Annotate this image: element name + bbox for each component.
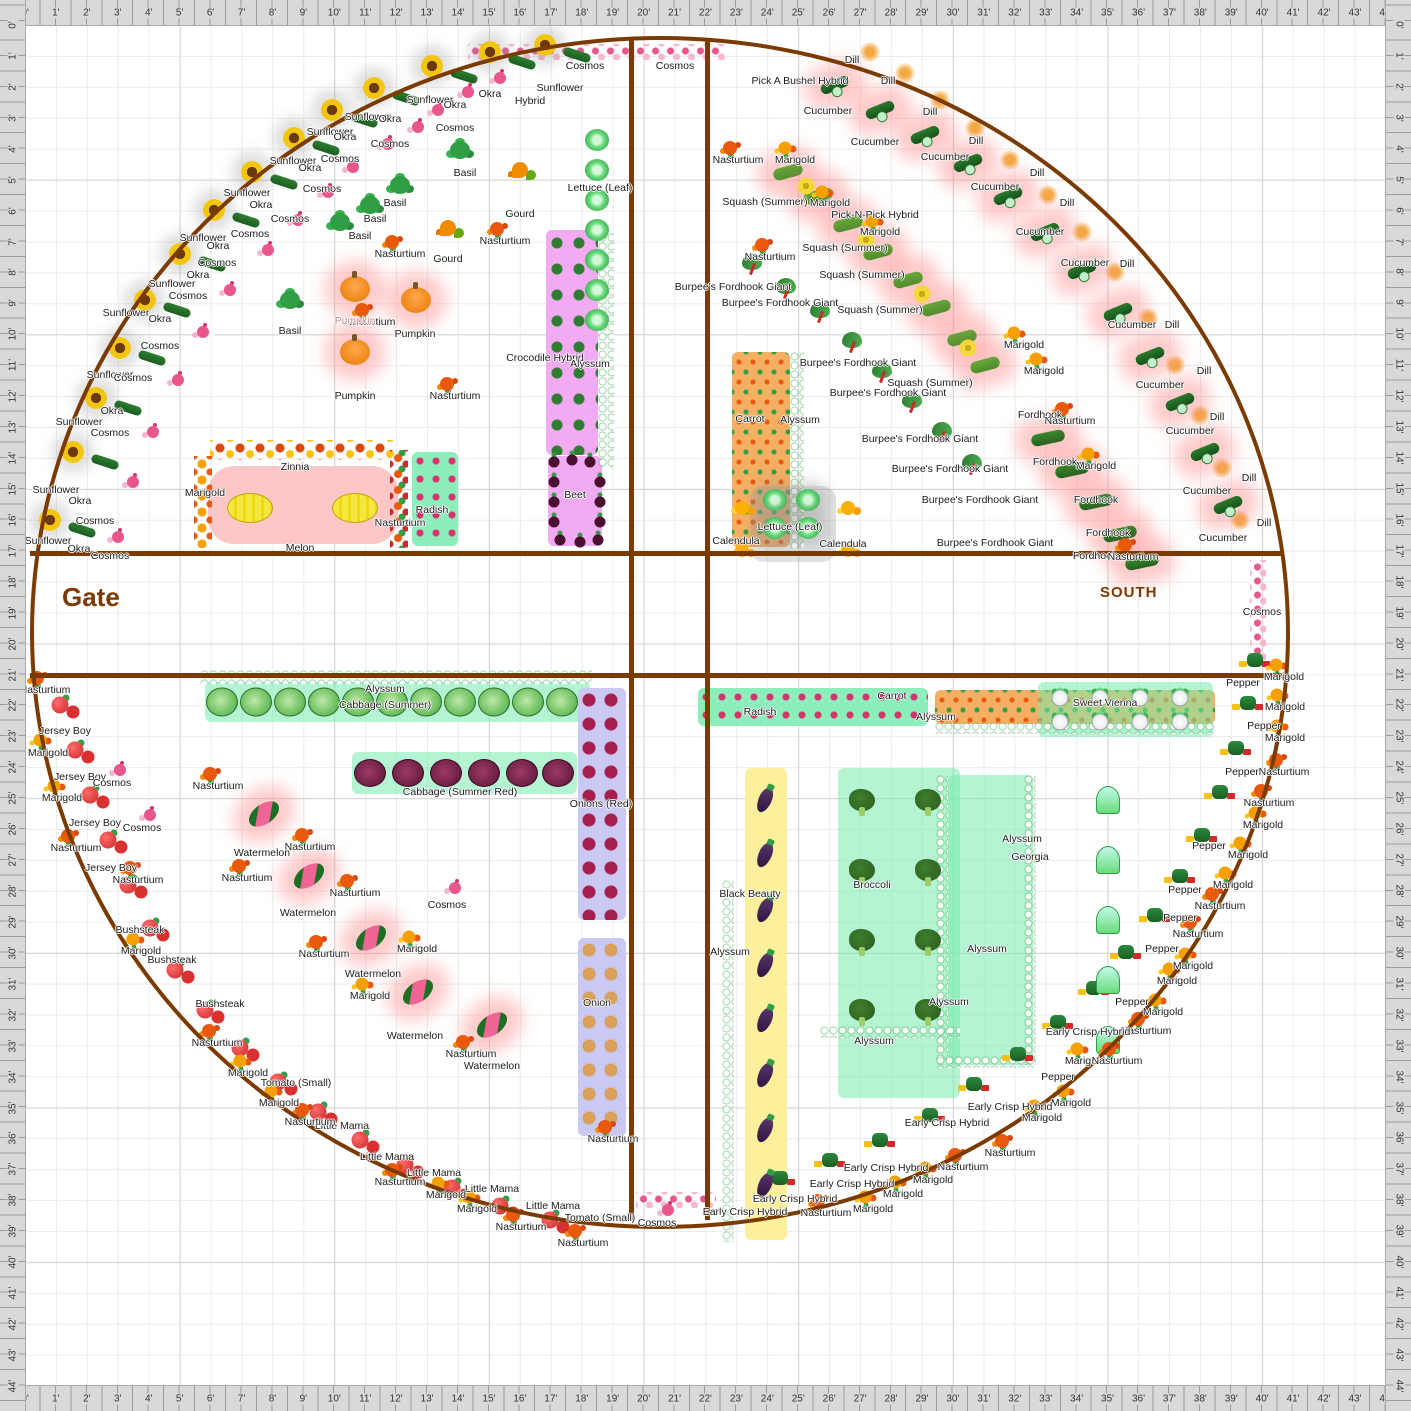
- plant-label[interactable]: Basil: [364, 213, 387, 225]
- plant-icon-cabbager[interactable]: [506, 759, 538, 787]
- plant-label[interactable]: Marigold: [860, 226, 900, 238]
- plant-icon-pepper[interactable]: [1118, 945, 1134, 959]
- plant-label[interactable]: Radish: [744, 706, 777, 718]
- plant-label[interactable]: Nasturtium: [1195, 900, 1246, 912]
- plant-icon-nasturtium[interactable]: [295, 828, 309, 842]
- plant-icon-lettuce[interactable]: [585, 129, 609, 151]
- plant-label[interactable]: Marigold: [1228, 849, 1268, 861]
- plant-label[interactable]: Nasturtium: [745, 251, 796, 263]
- plant-icon-nasturtium[interactable]: [723, 141, 737, 155]
- plant-label[interactable]: Nasturtium: [285, 1116, 336, 1128]
- plant-label[interactable]: Cosmos: [123, 822, 162, 834]
- plant-label[interactable]: Burpee's Fordhook Giant: [675, 281, 791, 293]
- plant-label[interactable]: Cosmos: [436, 122, 475, 134]
- plant-label[interactable]: Pepper: [1225, 766, 1259, 778]
- plant-label[interactable]: Squash (Summer): [837, 304, 922, 316]
- plant-label[interactable]: Watermelon: [234, 847, 290, 859]
- plant-icon-cosmos[interactable]: [224, 284, 236, 296]
- plant-label[interactable]: Nasturtium: [1108, 551, 1159, 563]
- plant-icon-basil[interactable]: [390, 176, 410, 194]
- plant-label[interactable]: Nasturtium: [222, 872, 273, 884]
- plant-label[interactable]: Cucumber: [921, 151, 969, 163]
- plant-label[interactable]: Cucumber: [851, 136, 899, 148]
- plant-label[interactable]: Alyssum: [916, 711, 956, 723]
- plant-label[interactable]: Sweet Vienna: [1073, 697, 1138, 709]
- plant-label[interactable]: Sunflower: [537, 82, 584, 94]
- plant-label[interactable]: Cosmos: [91, 427, 130, 439]
- plant-icon-sunflower[interactable]: [169, 243, 191, 265]
- plant-label[interactable]: Watermelon: [464, 1060, 520, 1072]
- plant-label[interactable]: Cabbage (Summer Red): [403, 786, 517, 798]
- plant-icon-pepper[interactable]: [1247, 653, 1263, 667]
- plant-icon-chard[interactable]: [842, 332, 862, 348]
- plant-label[interactable]: Nasturtium: [299, 948, 350, 960]
- plant-icon-marigold[interactable]: [859, 1191, 872, 1204]
- garden-bed[interactable]: [745, 768, 787, 1240]
- plant-label[interactable]: Pumpkin: [335, 315, 376, 327]
- plant-label[interactable]: Cucumber: [1061, 257, 1109, 269]
- plant-label[interactable]: Okra: [299, 162, 322, 174]
- plant-label[interactable]: Lettuce (Leaf): [568, 182, 633, 194]
- plant-label[interactable]: Nasturtium: [1259, 766, 1310, 778]
- plant-label[interactable]: Marigold: [775, 154, 815, 166]
- plant-label[interactable]: Marigold: [228, 1067, 268, 1079]
- plant-label[interactable]: Onions (Red): [570, 798, 632, 810]
- plant-icon-marigold[interactable]: [1270, 659, 1283, 672]
- plant-icon-nasturtium[interactable]: [232, 859, 246, 873]
- garden-bed[interactable]: [412, 452, 458, 546]
- plant-icon-cabbage[interactable]: [240, 688, 272, 717]
- plant-label[interactable]: Marigold: [1143, 1006, 1183, 1018]
- plant-label[interactable]: Nasturtium: [113, 874, 164, 886]
- path-vertical-west[interactable]: [629, 40, 634, 1220]
- path-vertical-east[interactable]: [705, 40, 710, 1220]
- plant-label[interactable]: Alyssum: [854, 1035, 894, 1047]
- plant-icon-beet[interactable]: [595, 517, 606, 528]
- plant-label[interactable]: Squash (Summer): [819, 269, 904, 281]
- plant-icon-bokchoy[interactable]: [1096, 966, 1120, 994]
- plant-label[interactable]: Hybrid: [515, 95, 545, 107]
- plant-label[interactable]: Cosmos: [321, 153, 360, 165]
- plant-label[interactable]: Sunflower: [103, 307, 150, 319]
- path-horizontal-south[interactable]: [30, 673, 1282, 678]
- plant-icon-marigold[interactable]: [1219, 867, 1232, 880]
- plant-label[interactable]: Cosmos: [114, 372, 153, 384]
- plant-label[interactable]: Early Crisp Hybrid: [968, 1101, 1053, 1113]
- plant-icon-dill[interactable]: [1165, 355, 1185, 375]
- plant-label[interactable]: Alyssum: [967, 943, 1007, 955]
- plant-label[interactable]: Georgia: [1011, 851, 1048, 863]
- plant-icon-broccoli[interactable]: [915, 929, 941, 951]
- plant-icon-beet[interactable]: [549, 457, 560, 468]
- plant-label[interactable]: Jersey Boy: [39, 725, 91, 737]
- plant-label[interactable]: Cosmos: [93, 777, 132, 789]
- plant-icon-kohlrabi[interactable]: [1172, 714, 1189, 731]
- plant-label[interactable]: Okra: [444, 99, 467, 111]
- plant-icon-cabbager[interactable]: [468, 759, 500, 787]
- plant-label[interactable]: Dill: [1257, 517, 1272, 529]
- plant-label[interactable]: Pumpkin: [335, 390, 376, 402]
- plant-icon-kohlrabi[interactable]: [1172, 690, 1189, 707]
- plant-icon-lettuce[interactable]: [585, 219, 609, 241]
- plant-label[interactable]: Marigold: [1264, 671, 1304, 683]
- plant-label[interactable]: Marigold: [185, 487, 225, 499]
- plant-label[interactable]: Okra: [69, 495, 92, 507]
- plant-icon-pepper[interactable]: [872, 1133, 888, 1147]
- plant-label[interactable]: Okra: [379, 113, 402, 125]
- plant-icon-nasturtium[interactable]: [340, 874, 354, 888]
- plant-label[interactable]: Basil: [454, 167, 477, 179]
- plant-icon-broccoli[interactable]: [915, 859, 941, 881]
- plant-icon-cosmos[interactable]: [412, 121, 424, 133]
- plant-label[interactable]: Marigold: [350, 990, 390, 1002]
- plant-label[interactable]: Carrot: [877, 690, 906, 702]
- plant-icon-cabbager[interactable]: [542, 759, 574, 787]
- plant-icon-tomato[interactable]: [100, 832, 117, 849]
- plant-label[interactable]: Cucumber: [1108, 319, 1156, 331]
- plant-icon-nasturtium[interactable]: [385, 235, 399, 249]
- plant-label[interactable]: Cosmos: [141, 340, 180, 352]
- plant-icon-cosmos[interactable]: [462, 86, 474, 98]
- plant-label[interactable]: Basil: [384, 197, 407, 209]
- plant-label[interactable]: Watermelon: [387, 1030, 443, 1042]
- plant-label[interactable]: Alyssum: [780, 414, 820, 426]
- plant-icon-nasturtium[interactable]: [506, 1208, 520, 1222]
- plant-label[interactable]: Cosmos: [371, 138, 410, 150]
- plant-icon-dill[interactable]: [860, 42, 880, 62]
- plant-label[interactable]: Watermelon: [345, 968, 401, 980]
- plant-icon-pattypan[interactable]: [960, 340, 977, 357]
- plant-label[interactable]: Onion: [583, 997, 611, 1009]
- plant-label[interactable]: Zinnia: [281, 461, 310, 473]
- plant-label[interactable]: Cosmos: [76, 515, 115, 527]
- plant-icon-kohlrabi[interactable]: [1132, 714, 1149, 731]
- plant-label[interactable]: Okra: [334, 131, 357, 143]
- plant-icon-broccoli[interactable]: [849, 789, 875, 811]
- plant-label[interactable]: Beet: [564, 489, 586, 501]
- plant-label[interactable]: Pepper: [1145, 943, 1179, 955]
- plant-icon-dill[interactable]: [1000, 150, 1020, 170]
- plant-icon-cabbage[interactable]: [478, 688, 510, 717]
- plant-label[interactable]: Early Crisp Hybrid: [703, 1206, 788, 1218]
- plant-label[interactable]: Little Mama: [526, 1200, 580, 1212]
- plant-icon-melon[interactable]: [332, 493, 378, 523]
- plant-icon-kohlrabi[interactable]: [1092, 714, 1109, 731]
- flower-row[interactable]: [936, 775, 948, 1065]
- plant-icon-marigold[interactable]: [779, 142, 792, 155]
- plant-label[interactable]: Nasturtium: [496, 1221, 547, 1233]
- plant-label[interactable]: Marigold: [1243, 819, 1283, 831]
- plant-icon-calendula[interactable]: [735, 501, 749, 515]
- plant-label[interactable]: Sunflower: [224, 187, 271, 199]
- plant-label[interactable]: Marigold: [426, 1189, 466, 1201]
- plant-icon-pattypan[interactable]: [914, 286, 931, 303]
- plant-icon-cabbage[interactable]: [274, 688, 306, 717]
- plant-icon-pepper[interactable]: [822, 1153, 838, 1167]
- plant-label[interactable]: Nasturtium: [1173, 928, 1224, 940]
- plant-label[interactable]: Dill: [1210, 411, 1225, 423]
- plant-label[interactable]: Marigold: [1076, 460, 1116, 472]
- plant-icon-basil[interactable]: [330, 213, 350, 231]
- plant-icon-nasturtium[interactable]: [1102, 1042, 1116, 1056]
- plant-label[interactable]: Cosmos: [1243, 606, 1282, 618]
- plant-label[interactable]: Early Crisp Hybrid: [810, 1178, 895, 1190]
- plant-icon-cabbager[interactable]: [430, 759, 462, 787]
- flower-row[interactable]: [390, 450, 408, 548]
- plant-icon-sunflower[interactable]: [39, 509, 61, 531]
- plant-label[interactable]: Nasturtium: [192, 1037, 243, 1049]
- plant-label[interactable]: Cucumber: [971, 181, 1019, 193]
- plant-label[interactable]: Marigold: [913, 1174, 953, 1186]
- plant-icon-sunflower[interactable]: [241, 161, 263, 183]
- plant-label[interactable]: Pepper: [1163, 912, 1197, 924]
- plant-icon-marigold[interactable]: [1057, 1085, 1070, 1098]
- plant-label[interactable]: Gourd: [433, 253, 462, 265]
- plant-label[interactable]: Dill: [969, 135, 984, 147]
- plant-icon-cosmos[interactable]: [197, 326, 209, 338]
- plant-label[interactable]: Carrot: [735, 413, 764, 425]
- plant-label[interactable]: Tomato (Small): [565, 1212, 636, 1224]
- plant-icon-beet[interactable]: [549, 497, 560, 508]
- plant-label[interactable]: Marigold: [121, 945, 161, 957]
- plant-label[interactable]: Pumpkin: [395, 328, 436, 340]
- plant-label[interactable]: Tomato (Small): [261, 1077, 332, 1089]
- plant-label[interactable]: Cucumber: [1136, 379, 1184, 391]
- plant-label[interactable]: Cosmos: [231, 228, 270, 240]
- plant-label[interactable]: Marigold: [28, 747, 68, 759]
- plant-label[interactable]: Nasturtium: [1244, 797, 1295, 809]
- plant-icon-marigold[interactable]: [1149, 994, 1162, 1007]
- plant-label[interactable]: Pick-N-Pick Hybrid: [831, 209, 919, 221]
- plant-icon-cosmos[interactable]: [494, 72, 506, 84]
- plant-icon-beet[interactable]: [567, 455, 578, 466]
- plant-label[interactable]: Fordhook: [1086, 527, 1130, 539]
- plant-label[interactable]: Marigold: [1173, 960, 1213, 972]
- plant-icon-cosmos[interactable]: [112, 531, 124, 543]
- plant-label[interactable]: Burpee's Fordhook Giant: [892, 463, 1008, 475]
- plant-label[interactable]: Cucumber: [804, 105, 852, 117]
- plant-icon-lettuce[interactable]: [796, 489, 820, 511]
- plant-label[interactable]: Okra: [479, 88, 502, 100]
- plant-icon-lettuce[interactable]: [585, 249, 609, 271]
- plant-label[interactable]: Broccoli: [853, 879, 890, 891]
- plant-label[interactable]: Lettuce (Leaf): [758, 521, 823, 533]
- plant-label[interactable]: Little Mama: [360, 1151, 414, 1163]
- plant-icon-broccoli[interactable]: [849, 859, 875, 881]
- plant-label[interactable]: Burpee's Fordhook Giant: [862, 433, 978, 445]
- plant-icon-dill[interactable]: [1190, 405, 1210, 425]
- plant-label[interactable]: Burpee's Fordhook Giant: [830, 387, 946, 399]
- plant-icon-dill[interactable]: [1038, 185, 1058, 205]
- plant-icon-pattypan[interactable]: [798, 178, 815, 195]
- plant-label[interactable]: Burpee's Fordhook Giant: [722, 297, 838, 309]
- plant-icon-sunflower[interactable]: [479, 41, 501, 63]
- plant-icon-dill[interactable]: [1072, 222, 1092, 242]
- plant-label[interactable]: Gourd: [505, 208, 534, 220]
- plant-label[interactable]: Pepper: [1192, 840, 1226, 852]
- plant-icon-nasturtium[interactable]: [203, 767, 217, 781]
- plant-icon-bokchoy[interactable]: [1096, 786, 1120, 814]
- plant-icon-nasturtium[interactable]: [1254, 784, 1268, 798]
- plant-label[interactable]: Nasturtium: [558, 1237, 609, 1249]
- plant-label[interactable]: Okra: [250, 199, 273, 211]
- plant-label[interactable]: Burpee's Fordhook Giant: [922, 494, 1038, 506]
- plant-label[interactable]: Marigold: [1051, 1097, 1091, 1109]
- plant-icon-sunflower[interactable]: [283, 127, 305, 149]
- plant-icon-tomato[interactable]: [52, 697, 69, 714]
- plant-label[interactable]: Cucumber: [1183, 485, 1231, 497]
- plant-label[interactable]: Squash (Summer): [802, 242, 887, 254]
- flower-row[interactable]: [468, 44, 725, 60]
- plant-icon-sunflower[interactable]: [534, 34, 556, 56]
- plant-label[interactable]: Nasturtium: [285, 841, 336, 853]
- plant-label[interactable]: Early Crisp Hybrid: [1046, 1026, 1131, 1038]
- plant-label[interactable]: Cucumber: [1016, 226, 1064, 238]
- plant-icon-nasturtium[interactable]: [385, 1163, 399, 1177]
- plant-icon-beet[interactable]: [549, 517, 560, 528]
- plant-icon-beet[interactable]: [595, 497, 606, 508]
- plant-icon-pepper[interactable]: [1240, 696, 1256, 710]
- plant-label[interactable]: Okra: [68, 543, 91, 555]
- plant-icon-cosmos[interactable]: [147, 426, 159, 438]
- plant-label[interactable]: Basil: [279, 325, 302, 337]
- plant-icon-cabbage[interactable]: [308, 688, 340, 717]
- plant-label[interactable]: Nasturtium: [801, 1207, 852, 1219]
- plant-label[interactable]: Dill: [923, 106, 938, 118]
- plant-icon-tomato[interactable]: [67, 742, 84, 759]
- flower-row[interactable]: [210, 440, 394, 460]
- plant-icon-sunflower[interactable]: [62, 441, 84, 463]
- plant-label[interactable]: Cosmos: [638, 1217, 677, 1229]
- plant-icon-pepper[interactable]: [772, 1171, 788, 1185]
- plant-label[interactable]: Cucumber: [1166, 425, 1214, 437]
- plant-icon-cosmos[interactable]: [144, 809, 156, 821]
- plant-icon-nasturtium[interactable]: [1269, 753, 1283, 767]
- plant-icon-lettuce[interactable]: [763, 489, 787, 511]
- plant-icon-pepper[interactable]: [1172, 869, 1188, 883]
- plant-label[interactable]: Cosmos: [198, 257, 237, 269]
- plant-icon-melon[interactable]: [227, 493, 273, 523]
- plant-icon-cosmos[interactable]: [172, 374, 184, 386]
- plant-label[interactable]: Basil: [349, 230, 372, 242]
- plant-icon-pepper[interactable]: [1228, 741, 1244, 755]
- plant-label[interactable]: Cucumber: [1199, 532, 1247, 544]
- plant-label[interactable]: Early Crisp Hybrid: [844, 1162, 929, 1174]
- plant-icon-cabbager[interactable]: [392, 759, 424, 787]
- plant-icon-nasturtium[interactable]: [202, 1024, 216, 1038]
- plant-label[interactable]: Marigold: [1022, 1112, 1062, 1124]
- plant-icon-dill[interactable]: [895, 63, 915, 83]
- plant-icon-cosmos[interactable]: [127, 476, 139, 488]
- plant-icon-marigold[interactable]: [1030, 353, 1043, 366]
- garden-bed[interactable]: [948, 775, 1033, 1065]
- plant-label[interactable]: Cosmos: [656, 60, 695, 72]
- plant-label[interactable]: Nasturtium: [375, 248, 426, 260]
- plant-label[interactable]: Marigold: [397, 943, 437, 955]
- plant-icon-nasturtium[interactable]: [440, 377, 454, 391]
- plant-icon-cabbage[interactable]: [546, 688, 578, 717]
- plant-label[interactable]: Nasturtium: [51, 842, 102, 854]
- plant-icon-pepper[interactable]: [1212, 785, 1228, 799]
- plant-label[interactable]: Nasturtium: [713, 154, 764, 166]
- plant-label[interactable]: Alyssum: [365, 683, 405, 695]
- plant-label[interactable]: Cosmos: [271, 213, 310, 225]
- plant-icon-lettuce[interactable]: [585, 159, 609, 181]
- plant-label[interactable]: Cosmos: [303, 183, 342, 195]
- plant-icon-marigold[interactable]: [1071, 1043, 1084, 1056]
- south-label[interactable]: SOUTH: [1100, 584, 1158, 601]
- plant-label[interactable]: Marigold: [1265, 732, 1305, 744]
- plant-icon-cabbage[interactable]: [444, 688, 476, 717]
- plant-icon-beet[interactable]: [593, 535, 604, 546]
- plant-label[interactable]: Dill: [845, 54, 860, 66]
- plant-icon-gourd[interactable]: [440, 220, 456, 236]
- plant-icon-beet[interactable]: [585, 457, 596, 468]
- plant-icon-nasturtium[interactable]: [309, 935, 323, 949]
- plant-label[interactable]: Fordhook: [1074, 494, 1118, 506]
- plant-icon-lettuce[interactable]: [585, 279, 609, 301]
- plant-icon-basil[interactable]: [360, 196, 380, 214]
- plant-label[interactable]: Nasturtium: [1045, 415, 1096, 427]
- plant-label[interactable]: Marigold: [457, 1203, 497, 1215]
- plant-label[interactable]: Dill: [1165, 319, 1180, 331]
- plant-label[interactable]: Nasturtium: [375, 517, 426, 529]
- plant-icon-kohlrabi[interactable]: [1052, 714, 1069, 731]
- plant-label[interactable]: Pepper: [1226, 677, 1260, 689]
- plant-icon-pumpkin[interactable]: [340, 339, 370, 365]
- plant-icon-nasturtium[interactable]: [995, 1134, 1009, 1148]
- plant-label[interactable]: Marigold: [1024, 365, 1064, 377]
- plant-label[interactable]: Nasturtium: [20, 684, 71, 696]
- plant-icon-basil[interactable]: [280, 291, 300, 309]
- plant-icon-pepper[interactable]: [966, 1077, 982, 1091]
- plant-icon-cabbager[interactable]: [354, 759, 386, 787]
- plant-icon-tomato[interactable]: [352, 1132, 369, 1149]
- plant-label[interactable]: Bushsteak: [195, 998, 244, 1010]
- plant-label[interactable]: Pepper: [1041, 1071, 1075, 1083]
- plant-label[interactable]: Dill: [881, 75, 896, 87]
- plant-icon-bokchoy[interactable]: [1096, 846, 1120, 874]
- plant-icon-broccoli[interactable]: [915, 789, 941, 811]
- plant-label[interactable]: Cosmos: [566, 60, 605, 72]
- plant-icon-kohlrabi[interactable]: [1052, 690, 1069, 707]
- plant-icon-bokchoy[interactable]: [1096, 906, 1120, 934]
- plant-icon-sunflower[interactable]: [363, 77, 385, 99]
- plant-icon-nasturtium[interactable]: [61, 829, 75, 843]
- plant-label[interactable]: Jersey Boy: [69, 817, 121, 829]
- plant-icon-nasturtium[interactable]: [490, 222, 504, 236]
- plant-label[interactable]: Dill: [1120, 258, 1135, 270]
- flower-row[interactable]: [1024, 775, 1036, 1065]
- plant-icon-cosmos[interactable]: [449, 882, 461, 894]
- plant-icon-cabbage[interactable]: [512, 688, 544, 717]
- plant-label[interactable]: Alyssum: [1002, 833, 1042, 845]
- plant-icon-cosmos[interactable]: [662, 1204, 674, 1216]
- plant-icon-broccoli[interactable]: [849, 929, 875, 951]
- plant-icon-broccoli[interactable]: [849, 999, 875, 1021]
- plant-label[interactable]: Burpee's Fordhook Giant: [800, 357, 916, 369]
- plant-label[interactable]: Fordhook: [1033, 456, 1077, 468]
- plant-icon-sunflower[interactable]: [421, 55, 443, 77]
- plant-label[interactable]: Black Beauty: [719, 888, 780, 900]
- plant-icon-calendula[interactable]: [841, 501, 855, 515]
- plant-label[interactable]: Marigold: [1157, 975, 1197, 987]
- plant-icon-gourd[interactable]: [512, 162, 528, 178]
- plant-icon-marigold[interactable]: [1179, 948, 1192, 961]
- plant-label[interactable]: Dill: [1197, 365, 1212, 377]
- garden-bed[interactable]: [578, 938, 626, 1136]
- plant-label[interactable]: Squash (Summer): [722, 196, 807, 208]
